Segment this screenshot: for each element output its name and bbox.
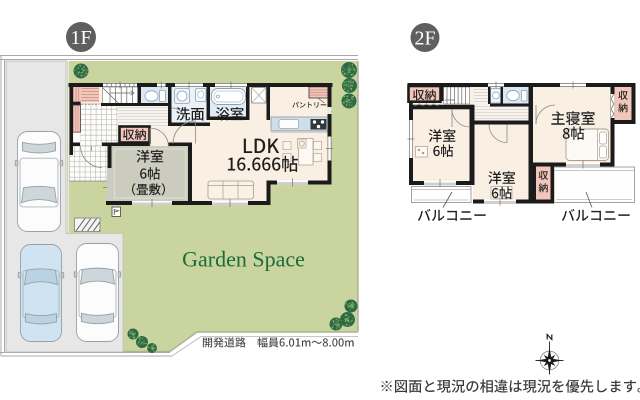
svg-text:2F: 2F — [414, 28, 435, 50]
svg-text:Garden Space: Garden Space — [182, 247, 305, 272]
svg-text:1F: 1F — [70, 27, 91, 49]
